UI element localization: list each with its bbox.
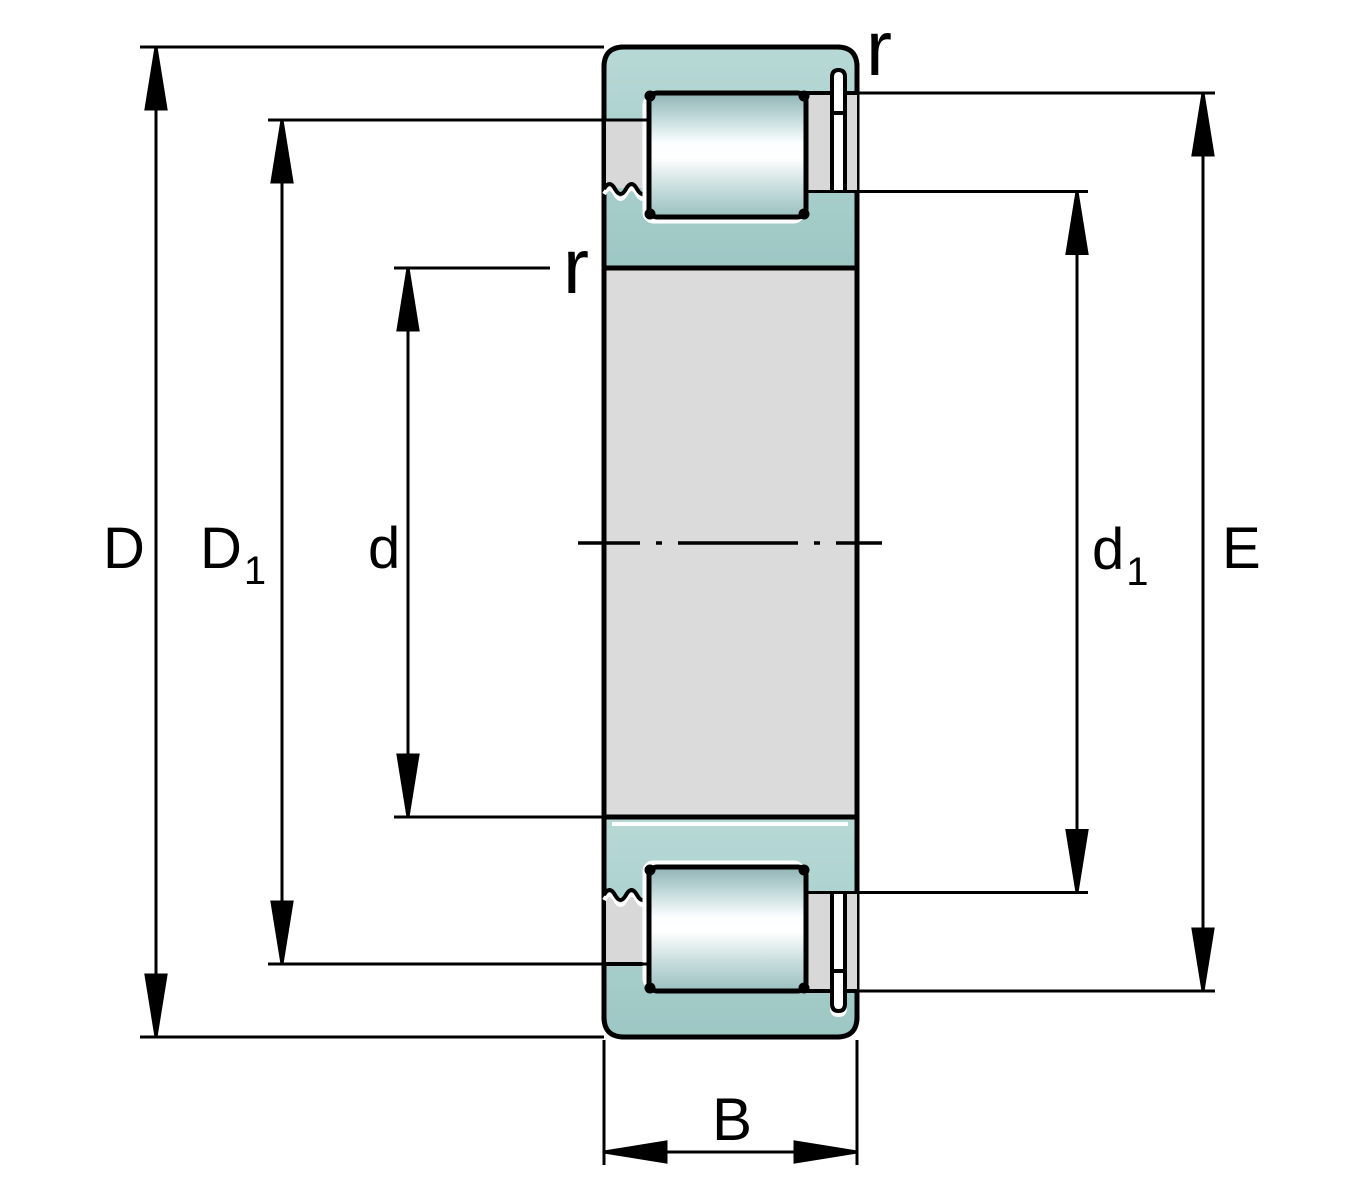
roller-corner-dot <box>799 209 810 220</box>
retaining-pin-top <box>832 70 845 191</box>
arrowhead-up <box>1067 192 1087 254</box>
roller-bottom <box>649 867 806 991</box>
arrowhead-up <box>398 268 418 330</box>
label-d: d <box>368 516 400 581</box>
arrowhead-down <box>146 975 166 1037</box>
bearing-cross-section-diagram: D D1 d d1 E B r r <box>0 0 1350 1200</box>
roller-corner-dot <box>645 983 656 994</box>
retaining-pin-bottom <box>832 893 845 1011</box>
roller-corner-dot <box>799 91 810 102</box>
label-B: B <box>712 1086 752 1153</box>
arrowhead-right <box>795 1142 857 1162</box>
label-D: D <box>103 516 145 581</box>
roller-corner-dot <box>645 865 656 876</box>
arrowhead-down <box>1193 929 1213 991</box>
dimension-E <box>845 93 1215 991</box>
arrowhead-up <box>272 120 292 182</box>
label-D1: D1 <box>200 516 266 593</box>
roller-corner-dot <box>799 865 810 876</box>
roller-top <box>649 93 806 217</box>
diagram-stage: D D1 d d1 E B r r <box>0 0 1350 1200</box>
arrowhead-up <box>1193 93 1213 155</box>
label-r-outer: r <box>866 4 892 92</box>
dimension-d <box>394 268 604 817</box>
arrowhead-down <box>398 755 418 817</box>
roller-corner-dot <box>645 91 656 102</box>
arrowhead-up <box>146 47 166 109</box>
arrowhead-left <box>604 1142 666 1162</box>
roller-corner-dot <box>799 983 810 994</box>
label-d1: d1 <box>1092 517 1149 594</box>
roller-corner-dot <box>645 209 656 220</box>
label-r-inner: r <box>563 222 589 310</box>
break-patch-top <box>606 121 648 188</box>
arrowhead-down <box>272 902 292 964</box>
label-E: E <box>1222 516 1261 581</box>
arrowhead-down <box>1067 831 1087 893</box>
